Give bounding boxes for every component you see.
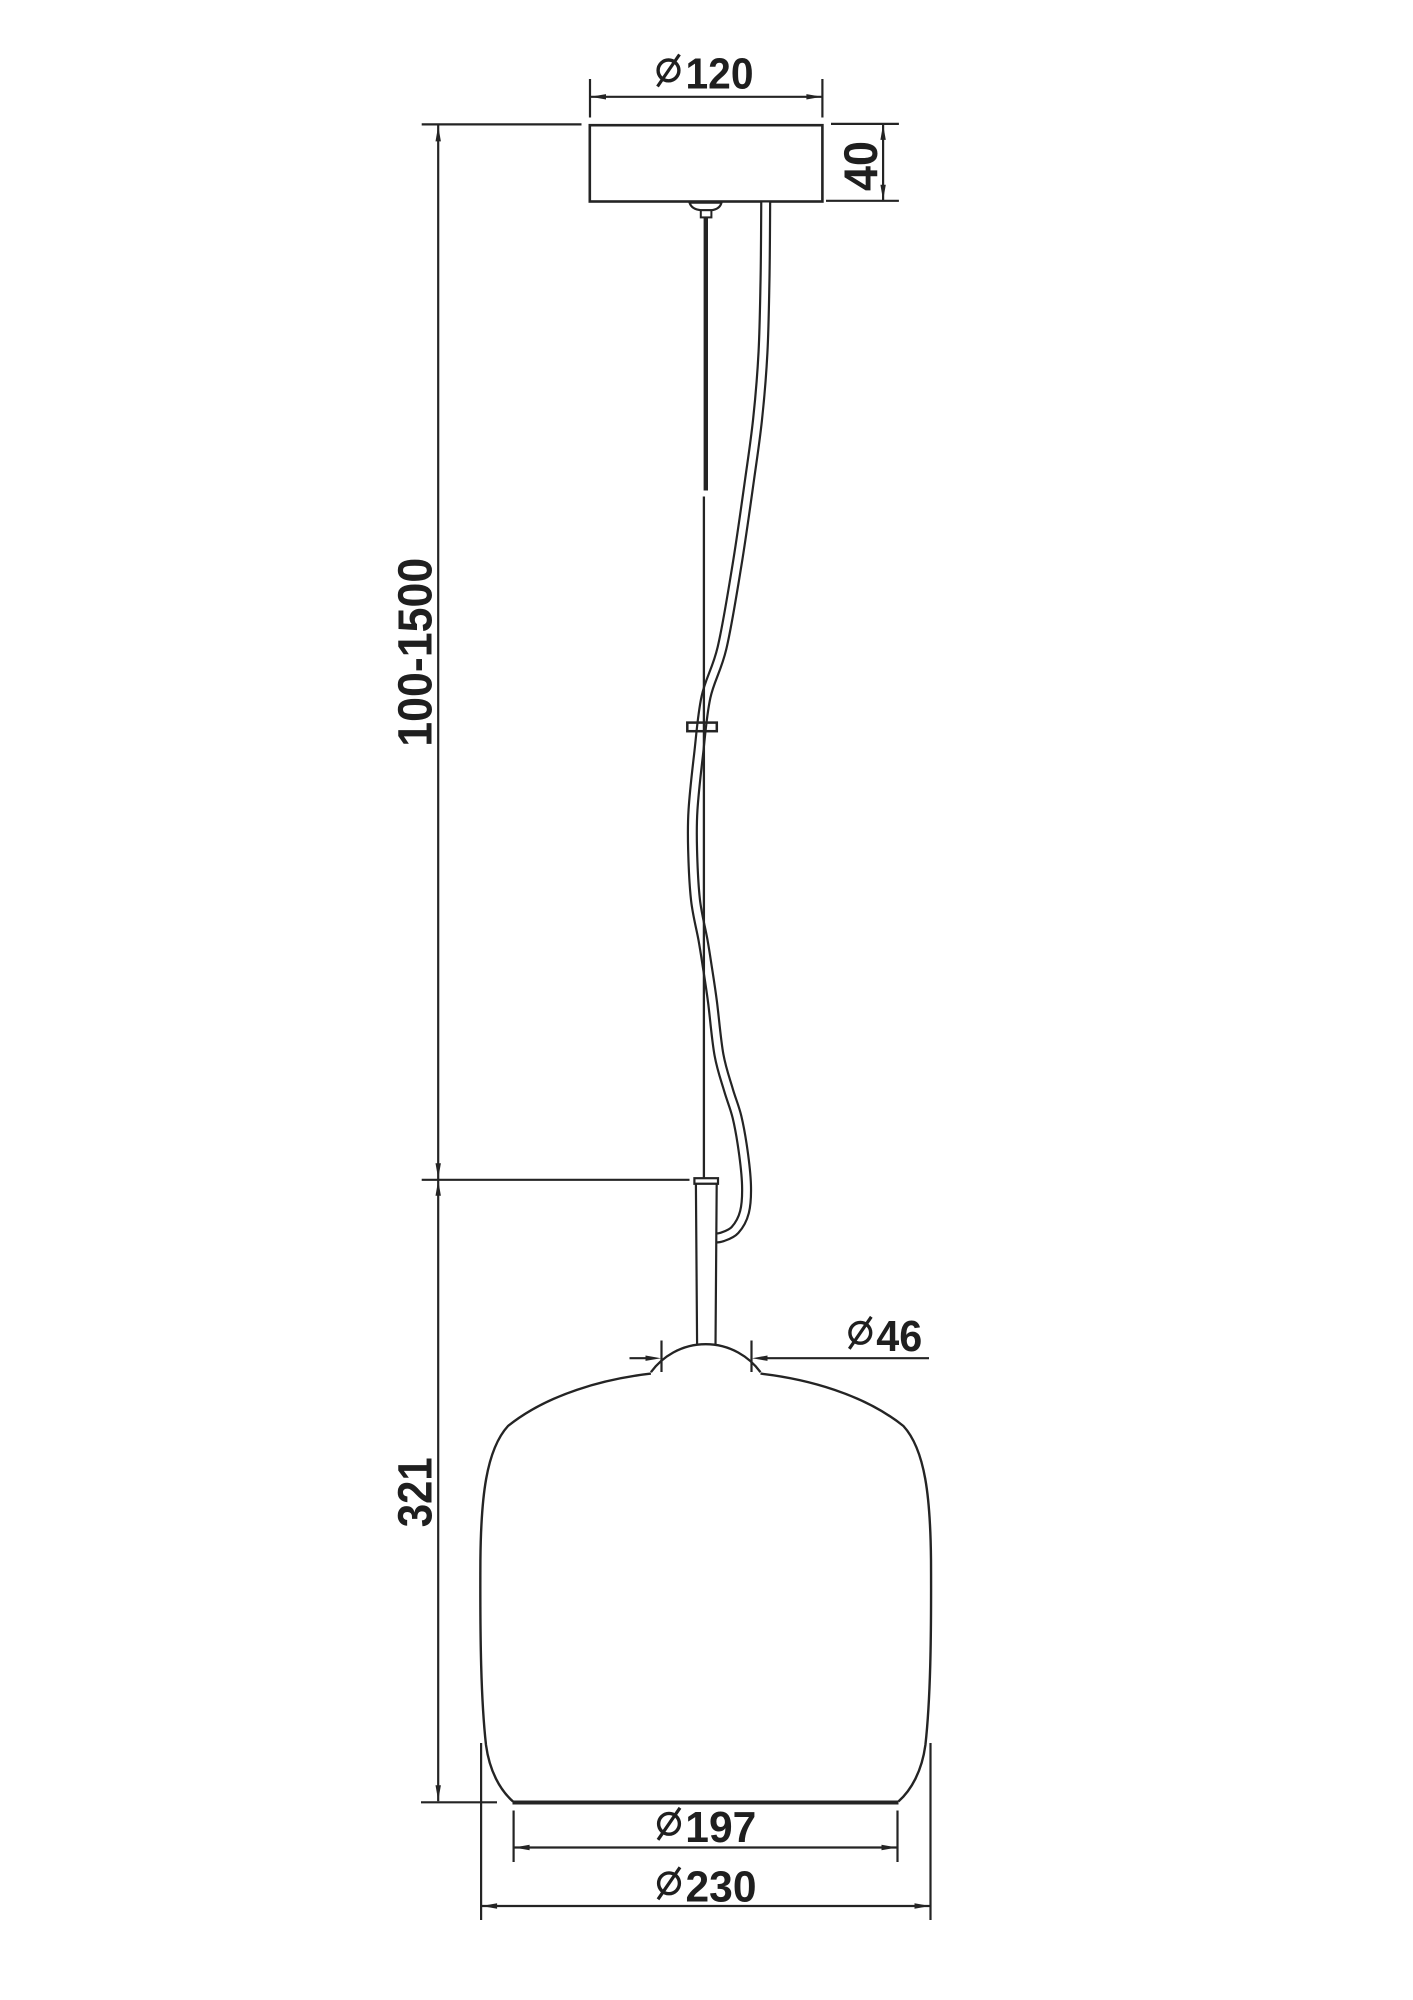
svg-text:197: 197: [685, 1803, 756, 1852]
svg-text:120: 120: [686, 50, 754, 99]
svg-text:100-1500: 100-1500: [390, 558, 443, 747]
svg-text:46: 46: [876, 1312, 922, 1361]
svg-text:40: 40: [834, 141, 887, 191]
svg-text:321: 321: [390, 1457, 443, 1527]
svg-text:230: 230: [686, 1862, 757, 1911]
